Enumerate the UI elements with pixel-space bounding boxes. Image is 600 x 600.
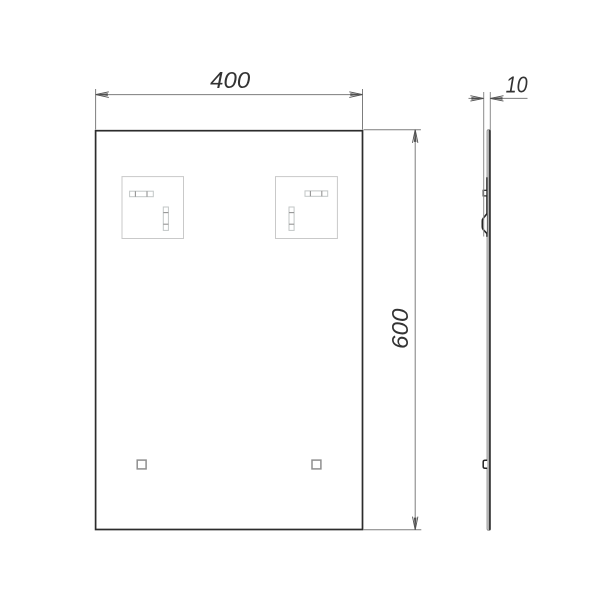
- svg-text:600: 600: [387, 308, 413, 349]
- svg-text:400: 400: [210, 67, 250, 93]
- svg-text:10: 10: [506, 72, 528, 98]
